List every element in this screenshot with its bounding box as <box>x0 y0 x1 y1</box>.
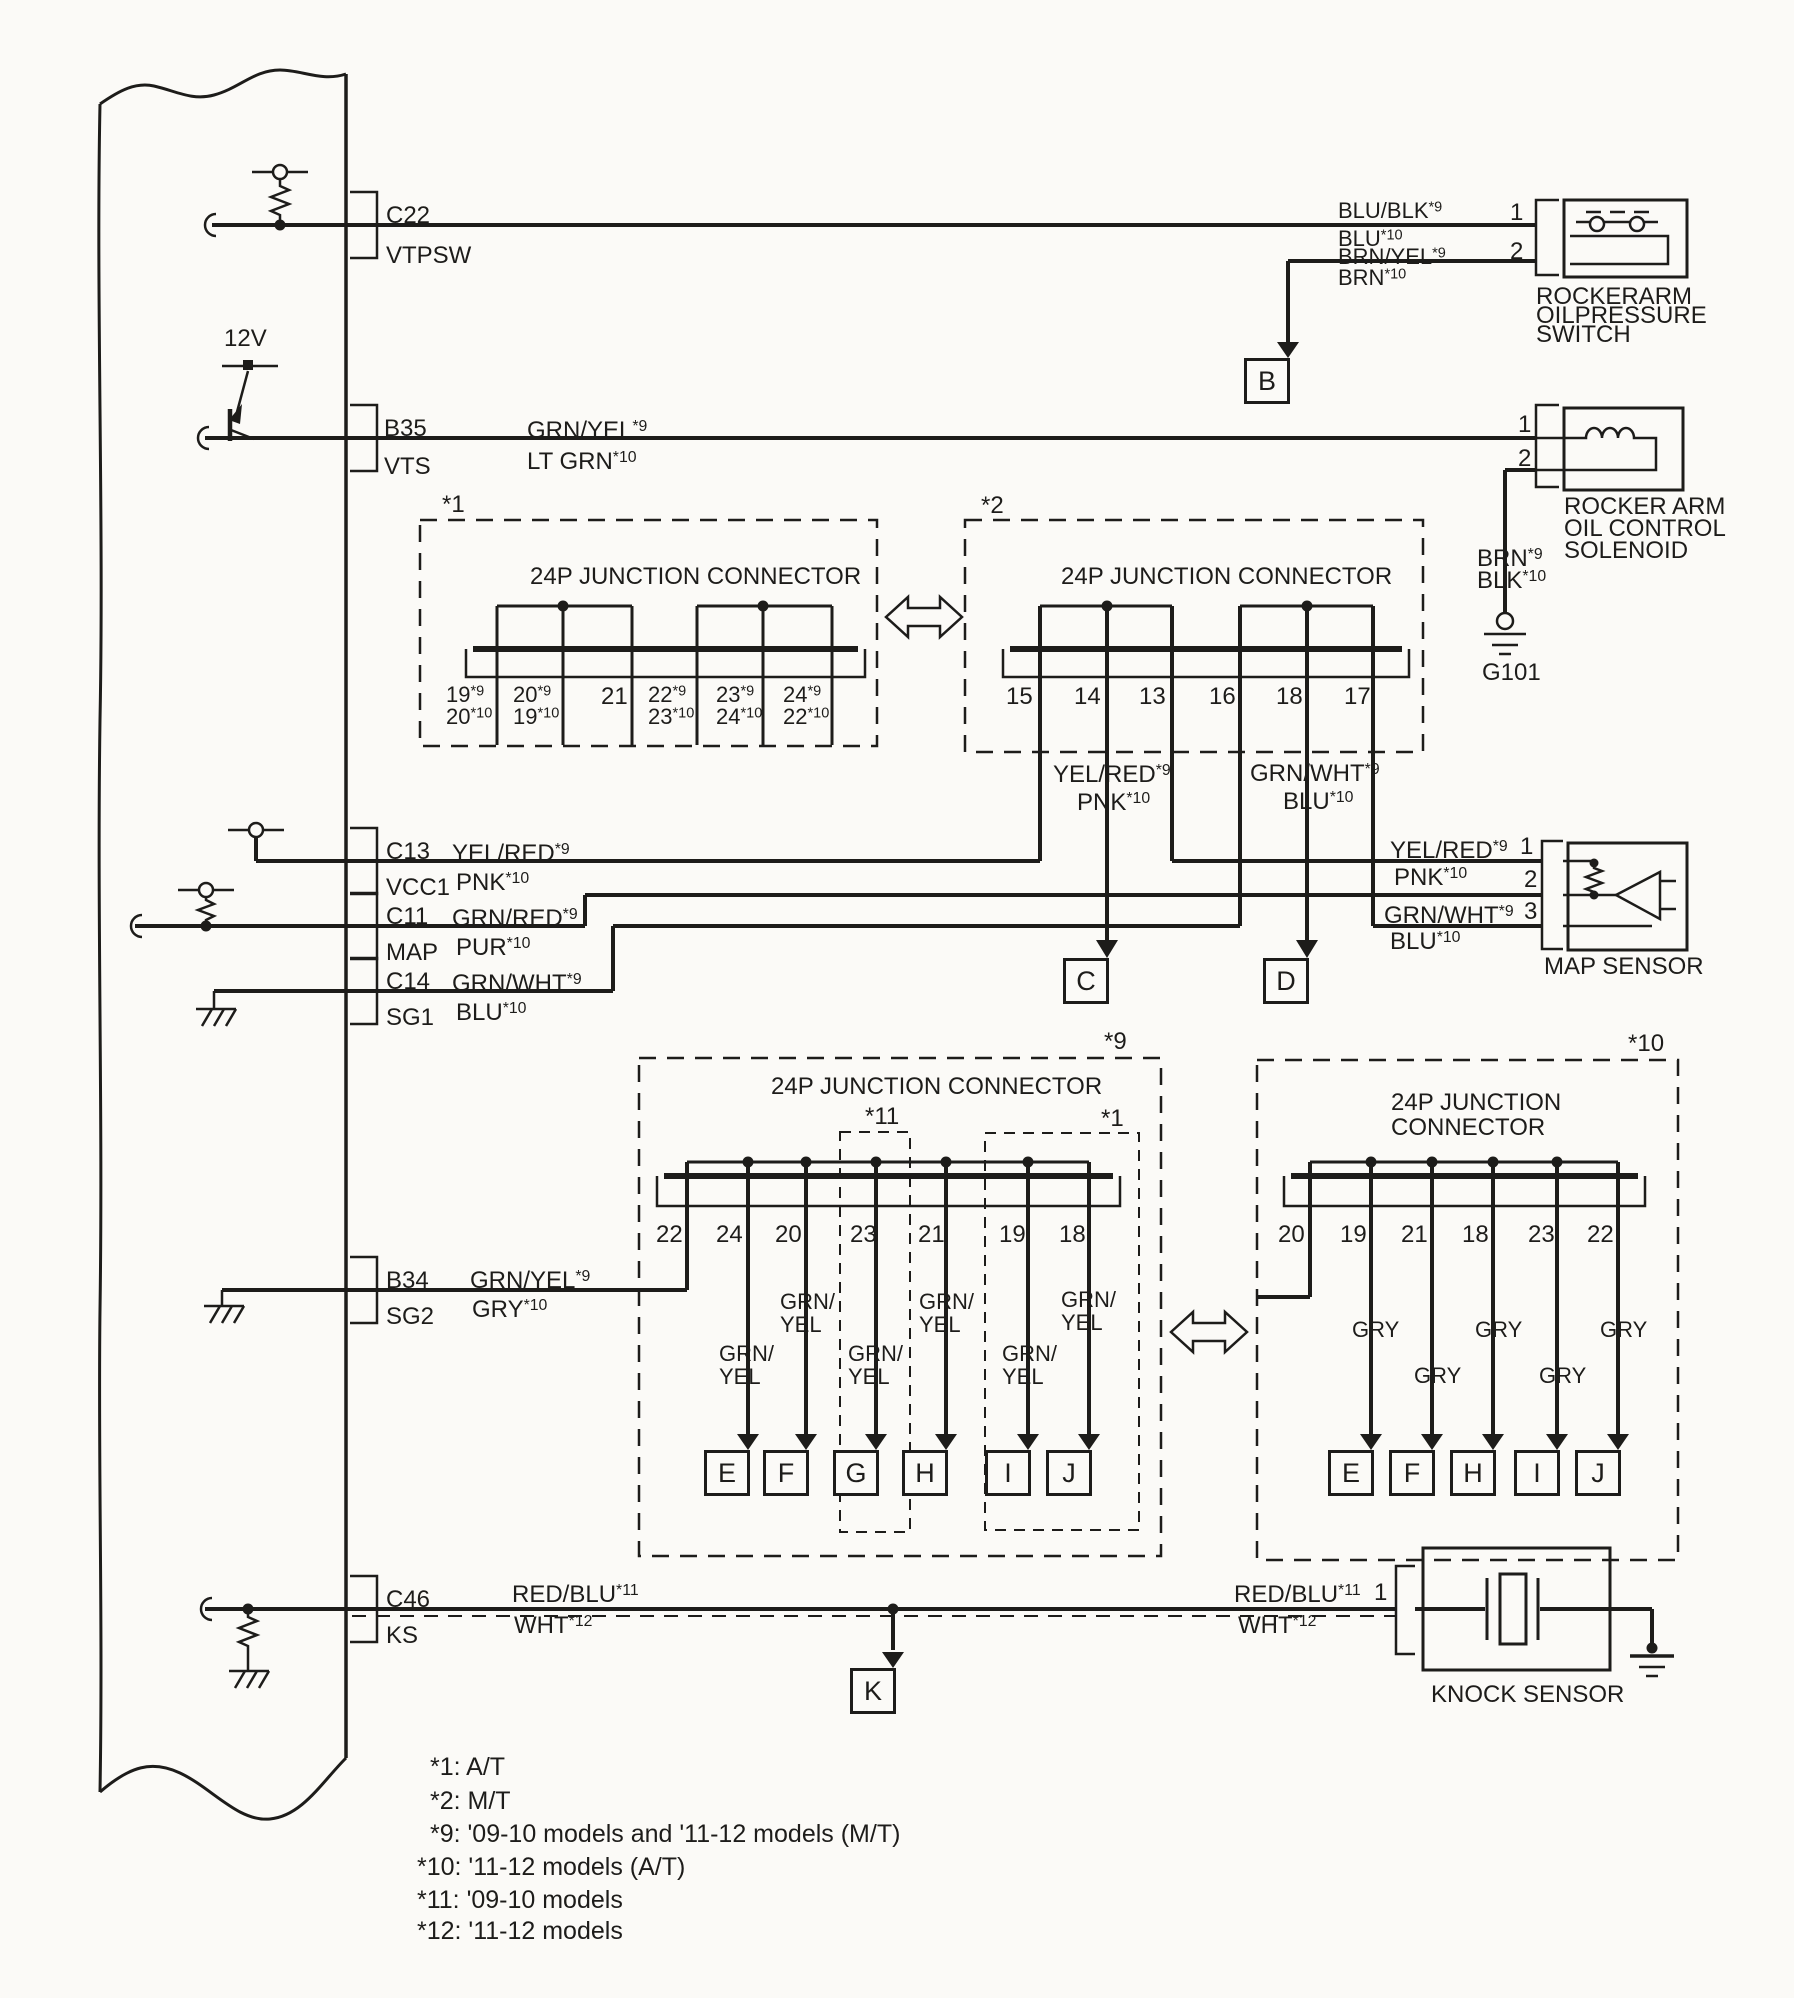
jc9-sub1-tag: *1 <box>1101 1106 1124 1132</box>
ecm-pin-c46-id: C46 <box>386 1587 430 1613</box>
wire-b34-sg2 <box>222 1206 687 1290</box>
footnote-9: *9: '09-10 models and '11-12 models (M/T… <box>430 1821 900 1848</box>
wire-map1-color-2: PNK*10 <box>1394 865 1467 891</box>
map-sensor <box>1542 841 1687 950</box>
jc9-tag: *9 <box>1104 1029 1127 1055</box>
ecm-internal-sg2-ground <box>204 1290 244 1323</box>
jc2-pin-15: 15 <box>1006 684 1033 710</box>
wire-ks-color-2: WHT*12 <box>514 1613 592 1639</box>
ref-box-k: K <box>850 1668 896 1714</box>
supply-12v-label: 12V <box>224 326 267 352</box>
wire-ks-right-color-2: WHT*12 <box>1238 1613 1316 1639</box>
wire-jc9-f: GRN/YEL <box>780 1290 835 1336</box>
ref-box-f-2: F <box>1389 1450 1435 1496</box>
jc9-sub11-tag: *11 <box>865 1104 899 1130</box>
jc1-pin-2: 20*919*10 <box>513 684 559 728</box>
jc1-pin-4: 22*923*10 <box>648 684 694 728</box>
wire-map3-color-2: BLU*10 <box>1390 929 1460 955</box>
wire-sg1-color-2: BLU*10 <box>456 1000 526 1026</box>
ref-box-e-2: E <box>1328 1450 1374 1496</box>
ref-box-d: D <box>1263 958 1309 1004</box>
connector-mate-arrow-icon <box>1171 1312 1247 1352</box>
map-caption: MAP SENSOR <box>1544 954 1704 980</box>
ecm-pin-c22-name: VTPSW <box>386 243 471 269</box>
connector-bracket <box>1536 200 1559 275</box>
arrow-to-b <box>1277 342 1299 358</box>
footnote-12: *12: '11-12 models <box>417 1918 623 1945</box>
jc10-title: 24P JUNCTIONCONNECTOR <box>1391 1090 1561 1140</box>
wire-c13-vcc1 <box>256 837 1040 861</box>
jc2-pin-14: 14 <box>1074 684 1101 710</box>
footnote-10: *10: '11-12 models (A/T) <box>417 1854 685 1881</box>
connector-bracket <box>1542 841 1563 949</box>
jc1-tag: *1 <box>442 492 465 518</box>
wire-map-color-2: PUR*10 <box>456 935 530 961</box>
map-pin-3: 3 <box>1524 899 1537 925</box>
wire-sg2-color-2: GRY*10 <box>472 1297 547 1323</box>
piezo-element-icon <box>1500 1574 1526 1644</box>
ref-box-f-1: F <box>763 1450 809 1496</box>
knock-pin-1: 1 <box>1374 1580 1387 1606</box>
jc9-pin-23: 23 <box>850 1222 877 1248</box>
wire-vts-color-2: LT GRN*10 <box>527 449 637 475</box>
wire-jc9-g: GRN/YEL <box>848 1342 903 1388</box>
wire-vtpsw-color-4: BRN*10 <box>1338 266 1406 290</box>
ecm-pin-c11-id: C11 <box>386 904 428 930</box>
ecm-pin-c46-name: KS <box>386 1623 418 1649</box>
ref-box-b: B <box>1244 358 1290 404</box>
jc10-pin-22: 22 <box>1587 1222 1614 1248</box>
ref-box-j-1: J <box>1046 1450 1092 1496</box>
footnote-2: *2: M/T <box>430 1788 511 1815</box>
jc2-pin-17: 17 <box>1344 684 1371 710</box>
ground-g101 <box>1484 613 1526 654</box>
jc2-title: 24P JUNCTION CONNECTOR <box>1061 564 1392 590</box>
jc1-pin-1: 19*920*10 <box>446 684 492 728</box>
wire-jc10-e: GRY <box>1352 1318 1399 1342</box>
switch-pin-2: 2 <box>1510 239 1523 265</box>
jc9-pin-19: 19 <box>999 1222 1026 1248</box>
ref-box-c: C <box>1063 958 1109 1004</box>
footnote-11: *11: '09-10 models <box>417 1887 623 1914</box>
ecm-pin-c14-name: SG1 <box>386 1005 434 1031</box>
jc10-pin-18: 18 <box>1462 1222 1489 1248</box>
jc2-pin-18: 18 <box>1276 684 1303 710</box>
jc10-pin-21: 21 <box>1401 1222 1428 1248</box>
jc10-pin-20: 20 <box>1278 1222 1305 1248</box>
connector-bracket <box>1396 1566 1415 1654</box>
jc10-tag: *10 <box>1628 1031 1664 1057</box>
ecm-internal-sg1-ground <box>196 991 236 1026</box>
jc2-pin-13: 13 <box>1139 684 1166 710</box>
jc9-pin-21: 21 <box>918 1222 945 1248</box>
wire-jc2-c-2: PNK*10 <box>1077 790 1150 816</box>
ecm-pin-c22-id: C22 <box>386 203 430 229</box>
ref-box-e-1: E <box>704 1450 750 1496</box>
jc1-pin-3: 21 <box>601 684 628 710</box>
ecm-pin-b35-id: B35 <box>384 416 427 442</box>
ref-box-h-1: H <box>902 1450 948 1496</box>
wire-jc2-c-1: YEL/RED*9 <box>1053 762 1171 788</box>
wire-jc10-j: GRY <box>1600 1318 1647 1342</box>
jc10-pin-23: 23 <box>1528 1222 1555 1248</box>
connector-bracket <box>1536 405 1559 487</box>
footnote-1: *1: A/T <box>430 1754 505 1781</box>
jc2-tag: *2 <box>981 493 1004 519</box>
coil-icon <box>1536 428 1656 470</box>
arrow-to-k <box>882 1652 904 1668</box>
jc9-pin-22: 22 <box>656 1222 683 1248</box>
switch-caption-3: SWITCH <box>1536 322 1631 348</box>
jc1-pin-6: 24*922*10 <box>783 684 829 728</box>
chassis-ground-icon <box>204 1306 244 1323</box>
chassis-ground-icon <box>196 1009 236 1026</box>
jc9-pin-24: 24 <box>716 1222 743 1248</box>
ecm-internal-vcc1-supply <box>228 823 284 837</box>
knock-caption: KNOCK SENSOR <box>1431 1682 1624 1708</box>
rocker-arm-oil-pressure-switch <box>1536 200 1687 277</box>
wire-solenoid-color-2: BLK*10 <box>1477 568 1546 594</box>
piezo-plates <box>1487 1578 1538 1640</box>
map-pin-1: 1 <box>1520 834 1533 860</box>
wire-sg1-color-1: GRN/WHT*9 <box>452 971 582 997</box>
chassis-ground-icon <box>229 1671 269 1688</box>
ecm-pin-b35-name: VTS <box>384 454 431 480</box>
wire-ks-right-color-1: RED/BLU*11 <box>1234 1582 1361 1608</box>
wire-vtpsw-color-1: BLU/BLK*9 <box>1338 199 1442 223</box>
solenoid-pin-2: 2 <box>1518 446 1531 472</box>
wire-jc10-h: GRY <box>1475 1318 1522 1342</box>
ecm-internal-vts-transistor <box>198 360 278 449</box>
ecm-pin-brackets <box>350 192 377 1642</box>
ecm-pin-b34-id: B34 <box>386 1268 429 1294</box>
wire-jc9-e: GRN/YEL <box>719 1342 774 1388</box>
wire-vcc1-color-1: YEL/RED*9 <box>452 841 570 867</box>
wire-jc2-d-2: BLU*10 <box>1283 789 1353 815</box>
amplifier-icon <box>1616 872 1660 919</box>
switch-pin-1: 1 <box>1510 200 1523 226</box>
solenoid-caption-3: SOLENOID <box>1564 538 1688 564</box>
resistor-icon <box>1586 863 1602 895</box>
ecm-outline <box>99 70 346 1819</box>
arrow-to-d <box>1296 940 1318 958</box>
wire-vcc1-color-2: PNK*10 <box>456 870 529 896</box>
rocker-arm-oil-control-solenoid <box>1536 405 1683 490</box>
ref-box-j-2: J <box>1575 1450 1621 1496</box>
ref-box-i-2: I <box>1514 1450 1560 1496</box>
ecm-internal-ks-filter <box>201 1598 269 1688</box>
wire-map3-color-1: GRN/WHT*9 <box>1384 903 1514 929</box>
wire-jc10-f: GRY <box>1414 1364 1461 1388</box>
jc1-title: 24P JUNCTION CONNECTOR <box>530 564 861 590</box>
map-pin-2: 2 <box>1524 867 1537 893</box>
jc9-pin-20: 20 <box>775 1222 802 1248</box>
ref-box-g-1: G <box>833 1450 879 1496</box>
jc10-pin-19: 19 <box>1340 1222 1367 1248</box>
ecm-pin-c13-name: VCC1 <box>386 875 450 901</box>
connector-mate-arrow-icon <box>886 597 962 637</box>
jc9-title: 24P JUNCTION CONNECTOR <box>771 1074 1102 1100</box>
wire-jc2-d-1: GRN/WHT*9 <box>1250 761 1380 787</box>
wire-jc9-j: GRN/YEL <box>1061 1288 1116 1334</box>
wire-jc9-i: GRN/YEL <box>1002 1342 1057 1388</box>
ecm-internal-map-pullup <box>131 883 234 937</box>
ref-box-i-1: I <box>985 1450 1031 1496</box>
wire-jc9-h: GRN/YEL <box>919 1290 974 1336</box>
knock-sensor <box>1396 1548 1674 1676</box>
wire-switch-pin2 <box>1288 261 1536 342</box>
wire-vts-color-1: GRN/YEL*9 <box>527 418 647 444</box>
ground-g101-label: G101 <box>1482 660 1541 686</box>
arrow-to-c <box>1096 940 1118 958</box>
jc2-pin-16: 16 <box>1209 684 1236 710</box>
wire-map-color-1: GRN/RED*9 <box>452 906 578 932</box>
solenoid-pin-1: 1 <box>1518 412 1531 438</box>
ecm-pin-b34-name: SG2 <box>386 1304 434 1330</box>
ecm-pin-c13-id: C13 <box>386 839 430 865</box>
wire-sg2-color-1: GRN/YEL*9 <box>470 1268 590 1294</box>
ecm-pin-c11-name: MAP <box>386 940 438 966</box>
wiring-diagram-page: C22VTPSW12VB35VTSC13VCC1C11MAPC14SG1B34S… <box>0 0 1794 1998</box>
jc1-pin-5: 23*924*10 <box>716 684 762 728</box>
wire-ks-color-1: RED/BLU*11 <box>512 1582 639 1608</box>
ref-box-h-2: H <box>1450 1450 1496 1496</box>
wire-map1-color-1: YEL/RED*9 <box>1390 838 1508 864</box>
jc9-pin-18: 18 <box>1059 1222 1086 1248</box>
ecm-pin-c14-id: C14 <box>386 969 430 995</box>
wire-jc10-i: GRY <box>1539 1364 1586 1388</box>
